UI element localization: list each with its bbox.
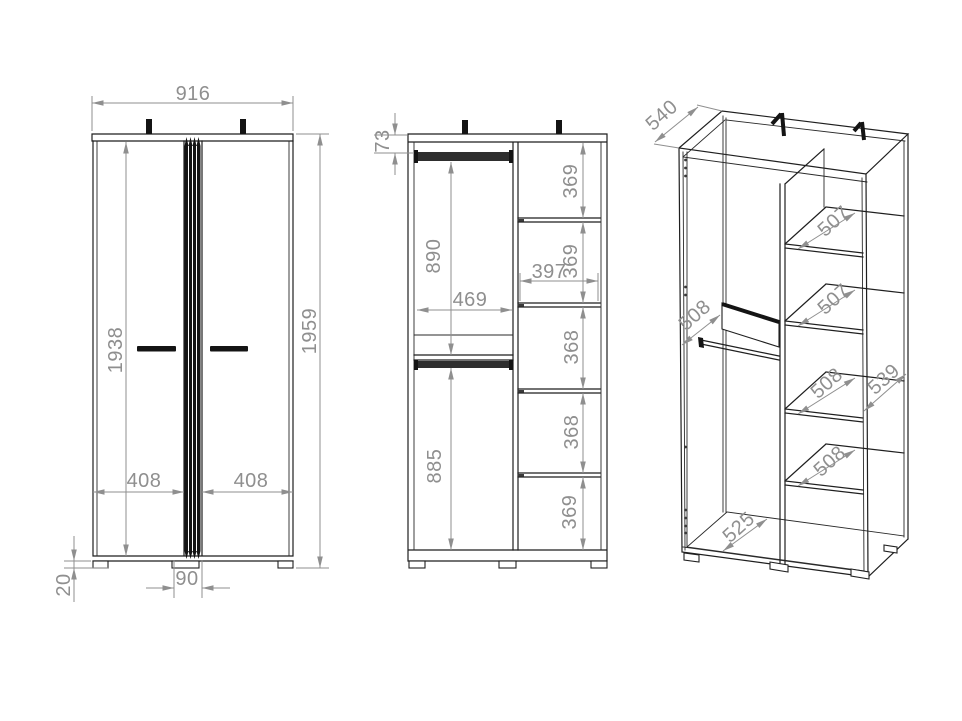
- dim-overall-height: 1959: [299, 308, 321, 355]
- dim-shelf-depth-4: 508: [810, 442, 851, 482]
- dim-side-depth: 539: [864, 360, 905, 400]
- back-brace-panel: [722, 303, 779, 347]
- dim-shelf-depth-3: 508: [807, 364, 848, 404]
- perspective-view: 540 508 507 507 508 508 539 525: [642, 96, 908, 579]
- shelves-perspective: [785, 207, 904, 494]
- wall-hook-icon: [772, 113, 784, 136]
- dim-center-trim: 90: [175, 568, 198, 590]
- front-view: 916 1959 1938 408 408 90 20: [53, 83, 329, 602]
- wall-bracket-icon: [462, 120, 468, 134]
- door-handle: [137, 346, 176, 352]
- dim-outer-depth: 540: [642, 96, 683, 136]
- shelves: [518, 218, 600, 477]
- dim-plinth-height: 20: [53, 573, 75, 596]
- hanging-rail-upper: [414, 150, 513, 163]
- dim-shelf-depth-2: 507: [814, 280, 855, 320]
- wardrobe-technical-drawing: 916 1959 1938 408 408 90 20: [0, 0, 962, 721]
- perspective-view-structure: [679, 111, 908, 579]
- dim-shelf-gap-1: 369: [560, 164, 582, 199]
- dim-door-height: 1938: [105, 327, 127, 374]
- dim-lower-section: 885: [424, 449, 446, 484]
- center-trim-strips: [185, 137, 201, 559]
- wall-bracket-icon: [240, 119, 246, 134]
- hanging-rail-lower: [414, 360, 513, 370]
- wall-bracket-icon: [146, 119, 152, 134]
- dim-right-door-width: 408: [234, 470, 269, 492]
- dim-upper-section: 890: [423, 239, 445, 274]
- dim-overall-width: 916: [176, 83, 211, 105]
- dim-shelf-gap-5: 369: [559, 495, 581, 530]
- dim-shelf-gap-4: 368: [561, 415, 583, 450]
- drawing-canvas: 916 1959 1938 408 408 90 20: [0, 0, 962, 721]
- wall-bracket-icon: [556, 120, 562, 134]
- door-handle: [210, 346, 248, 352]
- interior-view-dimensions: 73 890 885 469 397 369 369 368 368 369: [372, 113, 598, 550]
- dim-shelf-gap-3: 368: [561, 330, 583, 365]
- interior-view: 73 890 885 469 397 369 369 368 368 369: [372, 113, 607, 568]
- dim-rail-top-offset: 73: [372, 129, 394, 152]
- wall-hook-icon: [854, 122, 864, 140]
- dim-left-section-width: 469: [453, 289, 488, 311]
- dim-shelf-gap-2: 369: [560, 244, 582, 279]
- dim-left-door-width: 408: [127, 470, 162, 492]
